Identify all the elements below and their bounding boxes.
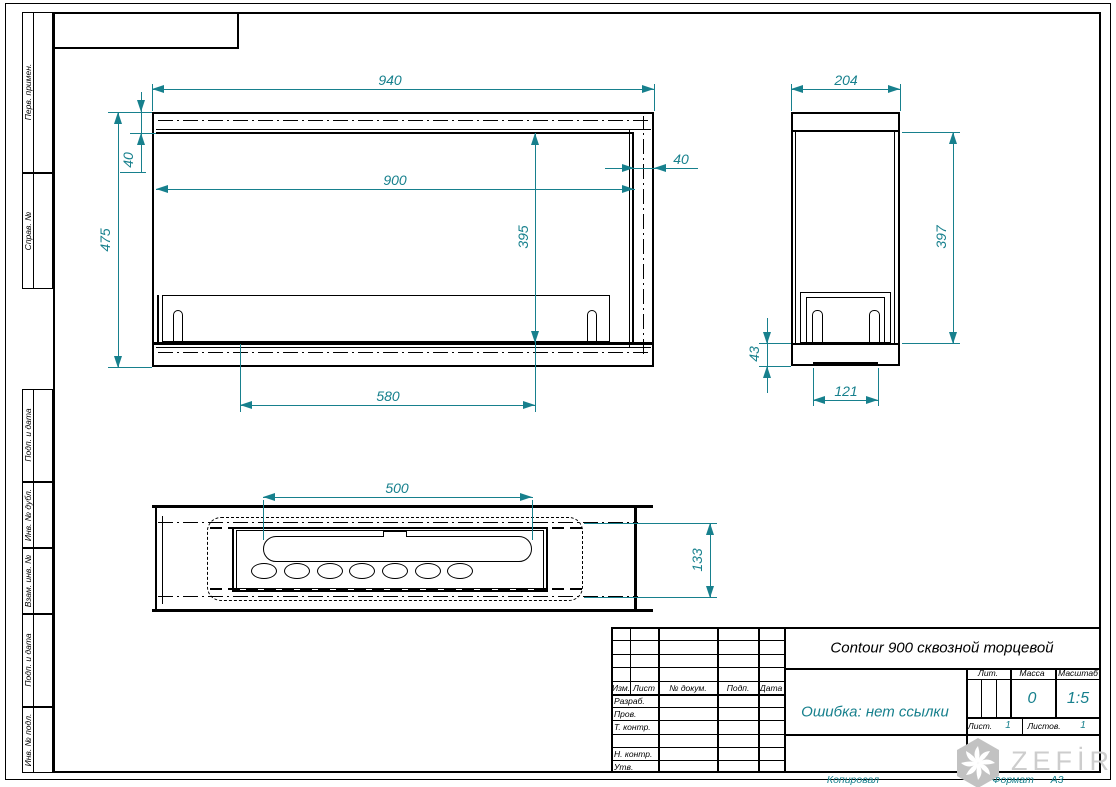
- line-segment: [158, 120, 650, 121]
- line-segment: [240, 405, 536, 406]
- flame-hole: [317, 563, 343, 579]
- margin-label: Инв. № дубл.: [24, 489, 33, 541]
- dim-text: 43: [747, 346, 761, 362]
- dim-text: 940: [378, 73, 401, 87]
- scale-value: 1:5: [1067, 691, 1089, 707]
- line-segment: [535, 133, 536, 343]
- line-segment: [584, 523, 717, 524]
- flame-hole: [382, 563, 408, 579]
- line-segment: [155, 507, 157, 610]
- zefire-logo-text: ZEFİRE: [1011, 746, 1116, 777]
- line-segment: [791, 89, 901, 90]
- tb-header-ndoc: № докум.: [669, 684, 706, 693]
- line-segment: [953, 132, 954, 344]
- line-segment: [240, 401, 252, 409]
- line-segment: [523, 401, 535, 409]
- line-segment: [888, 85, 900, 93]
- dim-text: 204: [834, 73, 857, 87]
- line-segment: [531, 331, 539, 343]
- line-segment: [717, 627, 719, 773]
- line-segment: [622, 164, 634, 172]
- flame-hole: [349, 563, 375, 579]
- tb-masshtab-label: Масштаб: [1058, 669, 1098, 678]
- dim-text: 397: [934, 225, 948, 248]
- line-segment: [152, 342, 654, 345]
- line-segment: [1022, 717, 1023, 734]
- line-segment: [758, 627, 760, 773]
- line-segment: [898, 130, 900, 343]
- line-segment: [622, 185, 634, 193]
- dim-text: 121: [834, 384, 857, 398]
- line-segment: [642, 85, 654, 93]
- line-segment: [611, 720, 784, 721]
- line-segment: [658, 627, 660, 773]
- flame-hole: [284, 563, 310, 579]
- line-segment: [520, 493, 532, 501]
- line-segment: [996, 679, 997, 717]
- line-segment: [763, 366, 771, 378]
- tb-row-prov: Пров.: [614, 710, 636, 719]
- line-segment: [158, 352, 650, 353]
- tb-header-izm: Изм.: [612, 684, 630, 693]
- burner-post: [587, 310, 597, 342]
- zefire-hexagon-icon: [955, 737, 1001, 787]
- line-segment: [949, 332, 957, 344]
- line-segment: [611, 747, 784, 748]
- dim-text: 475: [98, 228, 112, 251]
- line-segment: [611, 707, 784, 708]
- line-segment: [763, 332, 771, 344]
- line-segment: [156, 132, 634, 134]
- tb-row-tkontr: Т. контр.: [614, 723, 651, 732]
- line-segment: [981, 679, 982, 717]
- line-segment: [584, 597, 717, 598]
- line-segment: [120, 172, 146, 173]
- line-segment: [866, 396, 878, 404]
- line-segment: [611, 734, 784, 735]
- line-segment: [33, 12, 34, 173]
- line-segment: [966, 717, 1101, 719]
- line-segment: [813, 362, 878, 365]
- tb-row-razrab: Разраб.: [614, 697, 645, 706]
- line-segment: [33, 482, 34, 548]
- dim-text: 395: [516, 225, 530, 248]
- line-segment: [156, 189, 635, 190]
- line-segment: [33, 173, 34, 289]
- line-segment: [629, 129, 630, 347]
- tb-row-utv: Утв.: [614, 763, 633, 772]
- doc-name-note: Ошибка: нет ссылки: [801, 704, 949, 721]
- copied-label: Копировал: [827, 775, 879, 786]
- tb-row-nkontr: Н. контр.: [614, 750, 652, 759]
- tb-lit-label: Лит.: [978, 669, 998, 678]
- tb-massa-label: Масса: [1019, 669, 1044, 678]
- dim-text: 133: [690, 548, 704, 571]
- margin-label: Инв. № подл.: [24, 714, 33, 767]
- line-segment: [706, 586, 714, 598]
- line-segment: [535, 343, 536, 412]
- line-segment: [611, 640, 784, 641]
- line-segment: [611, 760, 784, 761]
- line-segment: [654, 164, 666, 172]
- drawing-title: Contour 900 сквозной торцевой: [830, 640, 1053, 657]
- slot-notch: [383, 531, 407, 537]
- line-segment: [605, 168, 698, 169]
- line-segment: [1055, 668, 1057, 717]
- corner-designation-box: [53, 12, 239, 49]
- line-segment: [767, 318, 768, 393]
- line-segment: [813, 396, 825, 404]
- margin-label: Взам. инв. №: [24, 555, 33, 608]
- line-segment: [156, 129, 651, 130]
- sheets-total-value: 1: [1080, 721, 1086, 731]
- line-segment: [894, 132, 895, 343]
- line-segment: [795, 132, 796, 343]
- burner-post: [869, 310, 880, 343]
- line-segment: [961, 746, 995, 780]
- burner-tray-front: [162, 295, 610, 342]
- dim-text: 900: [383, 173, 406, 187]
- line-segment: [137, 100, 145, 112]
- burner-slot: [263, 536, 532, 562]
- line-segment: [152, 609, 653, 612]
- line-segment: [33, 614, 34, 707]
- dim-text: 500: [385, 481, 408, 495]
- line-segment: [263, 497, 533, 498]
- mass-value: 0: [1028, 691, 1037, 707]
- line-segment: [152, 89, 655, 90]
- line-segment: [263, 500, 264, 540]
- dim-text: 40: [673, 152, 689, 166]
- tb-sheet-label: Лист.: [968, 722, 992, 731]
- line-segment: [156, 185, 168, 193]
- line-segment: [611, 654, 784, 655]
- line-segment: [162, 516, 163, 604]
- line-segment: [643, 116, 644, 354]
- line-segment: [33, 548, 34, 614]
- line-segment: [137, 133, 145, 145]
- line-segment: [532, 500, 533, 540]
- line-segment: [784, 627, 786, 773]
- line-segment: [949, 132, 957, 144]
- line-segment: [630, 627, 631, 694]
- line-segment: [791, 85, 803, 93]
- tb-sheets-label: Листов.: [1027, 722, 1060, 731]
- burner-post: [812, 310, 823, 343]
- tb-header-list: Лист: [633, 684, 655, 693]
- line-segment: [118, 112, 119, 368]
- line-segment: [966, 679, 1101, 680]
- line-segment: [152, 505, 653, 508]
- line-segment: [791, 130, 793, 343]
- flame-hole: [447, 563, 473, 579]
- dim-text: 580: [376, 389, 399, 403]
- margin-label: Подп. и дата: [24, 633, 33, 686]
- tb-header-data: Дата: [760, 684, 782, 693]
- line-segment: [156, 347, 651, 348]
- line-segment: [791, 112, 900, 132]
- margin-label: Справ. №: [24, 212, 33, 251]
- sheet-value: 1: [1005, 721, 1011, 731]
- line-segment: [33, 707, 34, 773]
- flame-hole: [415, 563, 441, 579]
- flame-hole: [251, 563, 277, 579]
- margin-label: Перв. примен.: [24, 64, 33, 121]
- line-segment: [1010, 668, 1012, 717]
- line-segment: [114, 356, 122, 368]
- burner-post: [173, 310, 183, 342]
- line-segment: [784, 734, 1101, 736]
- line-segment: [263, 493, 275, 501]
- line-segment: [706, 523, 714, 535]
- line-segment: [114, 112, 122, 124]
- line-segment: [784, 668, 1101, 670]
- line-segment: [157, 295, 159, 342]
- margin-label: Подп. и дата: [24, 408, 33, 461]
- line-segment: [611, 667, 784, 668]
- line-segment: [33, 389, 34, 482]
- drawing-sheet: Перв. примен. Справ. № Подп. и дата Инв.…: [0, 0, 1116, 787]
- line-segment: [531, 133, 539, 145]
- line-segment: [152, 85, 164, 93]
- dim-text: 40: [121, 152, 135, 168]
- tb-header-podp: Подп.: [727, 684, 750, 693]
